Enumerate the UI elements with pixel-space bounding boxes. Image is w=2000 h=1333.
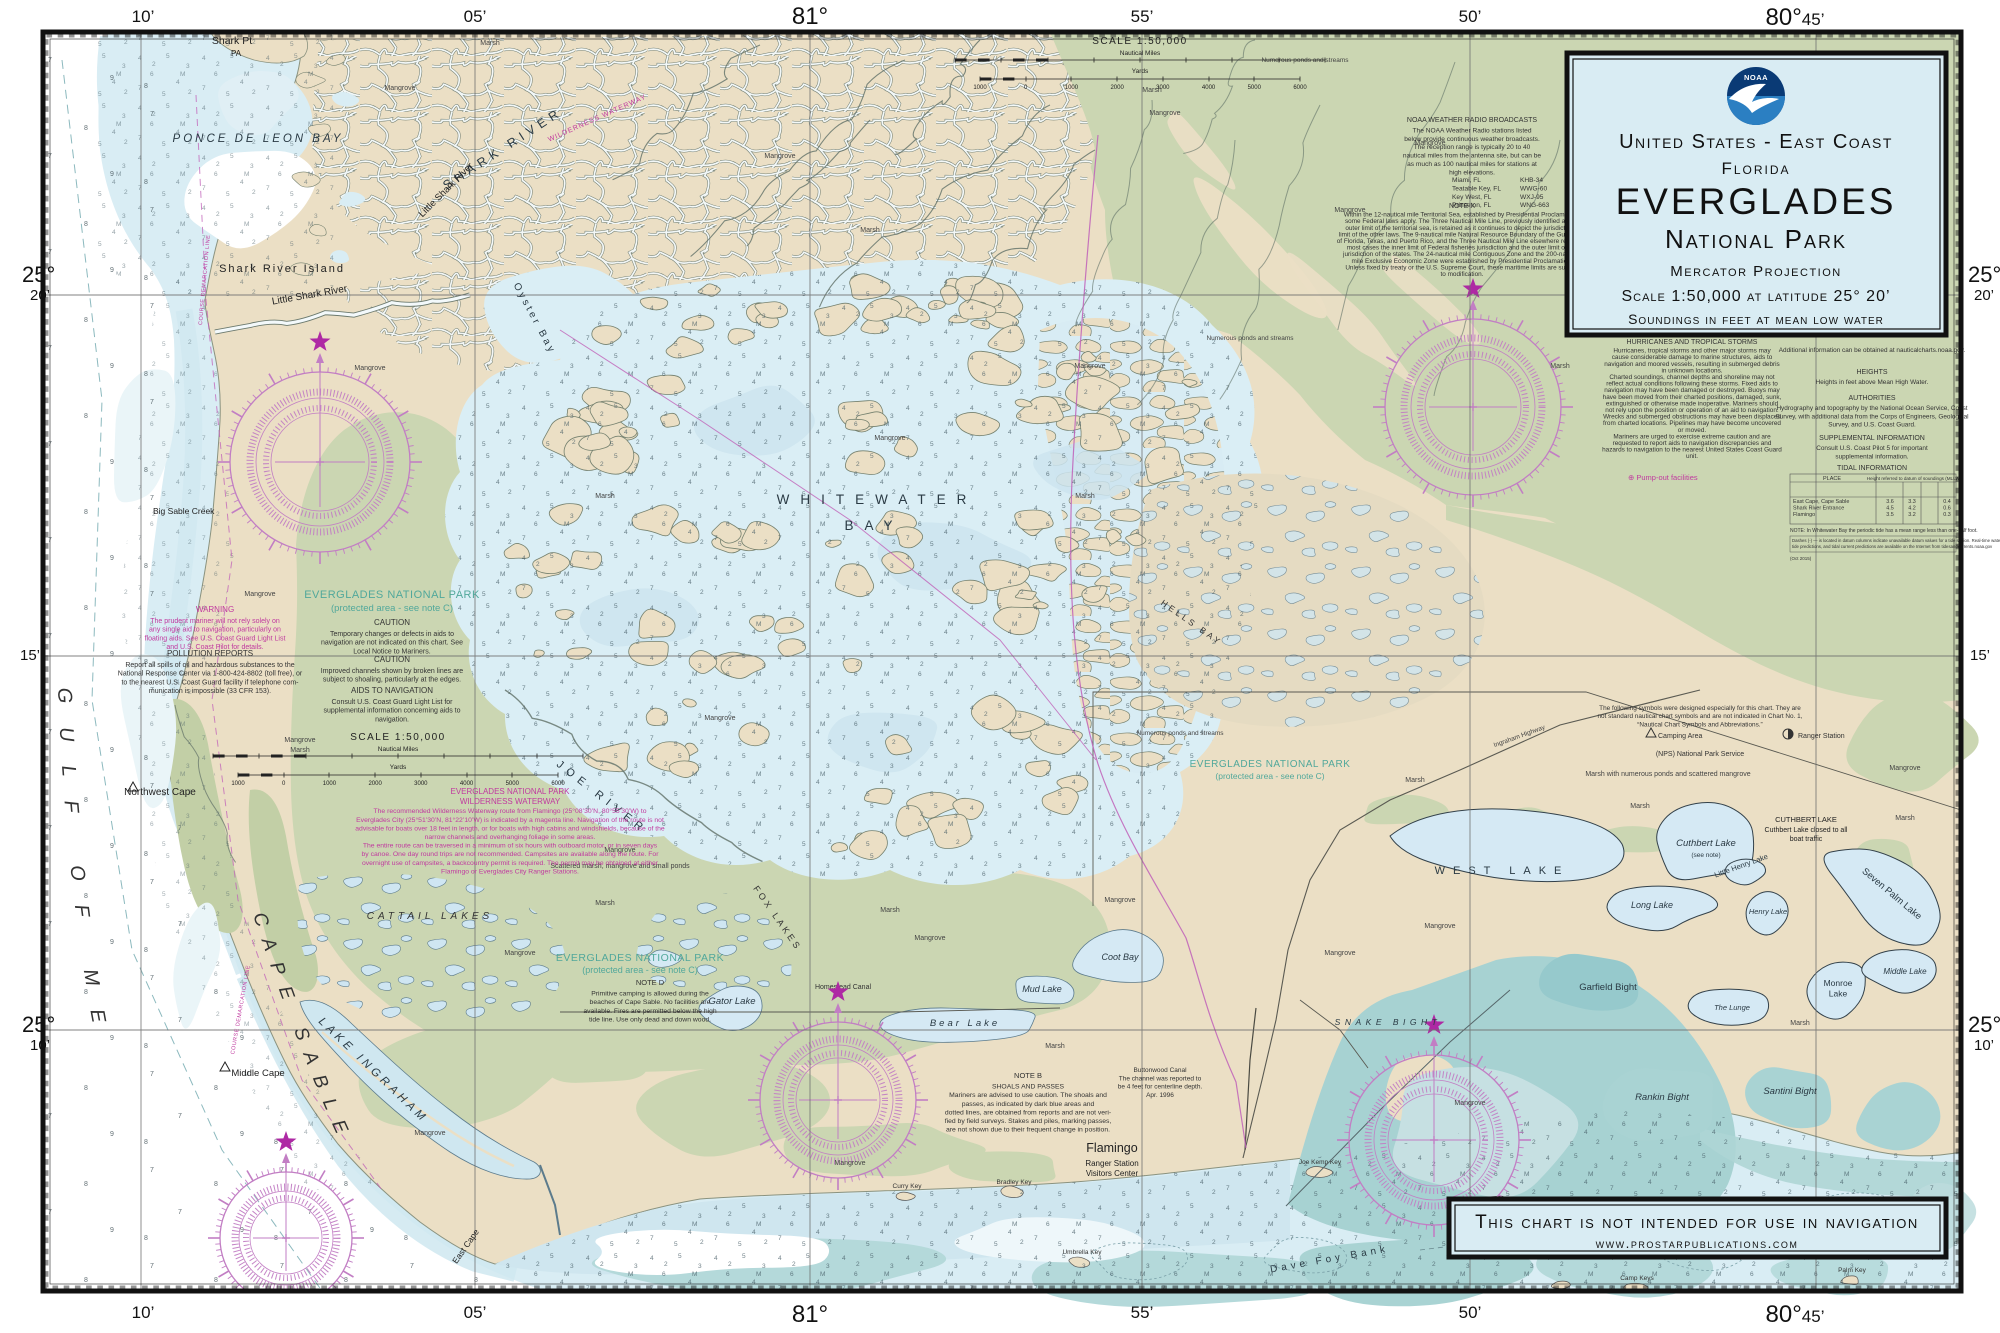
svg-text:Mariners are advised to use ca: Mariners are advised to use caution. The… xyxy=(949,1092,1107,1099)
svg-text:Teatable Key, FL: Teatable Key, FL xyxy=(1452,185,1501,192)
svg-text:Shark River Entrance: Shark River Entrance xyxy=(1793,506,1844,512)
svg-text:10’: 10’ xyxy=(1974,1037,1994,1054)
svg-text:WHITEWATER: WHITEWATER xyxy=(777,492,978,507)
svg-text:Mangrove: Mangrove xyxy=(914,935,945,942)
svg-text:“Nautical Chart Symbols and Ab: “Nautical Chart Symbols and Abbreviation… xyxy=(1637,721,1762,728)
svg-text:boat traffic: boat traffic xyxy=(1790,836,1823,843)
svg-text:Numerous ponds and streams: Numerous ponds and streams xyxy=(1136,730,1224,737)
svg-text:Middle Lake: Middle Lake xyxy=(1883,967,1927,976)
svg-text:The entire route can be traver: The entire route can be traversed in a m… xyxy=(363,843,658,850)
svg-text:NOTE B: NOTE B xyxy=(1014,1071,1042,1080)
svg-text:dotted lines, are obtained fro: dotted lines, are obtained from reports … xyxy=(945,1109,1111,1116)
svg-text:NOTE D: NOTE D xyxy=(636,978,665,987)
svg-text:United States - East Coast: United States - East Coast xyxy=(1619,131,1893,153)
svg-text:are not shown due to their fre: are not shown due to their frequent chan… xyxy=(946,1127,1110,1134)
svg-text:Flamingo: Flamingo xyxy=(1086,1141,1137,1155)
svg-text:Everglades City (25°51’30’N,: Everglades City (25°51’30’N, 81°22’10’W)… xyxy=(356,816,664,824)
svg-text:50’: 50’ xyxy=(1459,7,1482,26)
svg-text:East Cape, Cape Sable: East Cape, Cape Sable xyxy=(1793,499,1849,505)
svg-text:81°: 81° xyxy=(792,3,828,30)
svg-text:be 4 feet for centerline depth: be 4 feet for centerline depth. xyxy=(1118,1084,1203,1091)
svg-text:1000: 1000 xyxy=(1065,85,1079,91)
svg-text:(see note): (see note) xyxy=(1691,852,1720,859)
svg-text:Curry Key: Curry Key xyxy=(893,1183,923,1190)
svg-text:Garfield Bight: Garfield Bight xyxy=(1579,982,1637,993)
svg-text:navigation are not indicated: navigation are not indicated on this cha… xyxy=(321,640,463,647)
svg-text:not standard nautical chart: not standard nautical chart symbols and … xyxy=(1598,713,1803,720)
svg-text:The channel was reported to: The channel was reported to xyxy=(1119,1075,1202,1082)
svg-text:1000: 1000 xyxy=(323,781,337,787)
svg-text:Marsh with numerous ponds and: Marsh with numerous ponds and scattered … xyxy=(1585,771,1750,778)
svg-text:Mangrove: Mangrove xyxy=(704,715,735,722)
svg-text:passes, as indicated by d: passes, as indicated by dark blue areas … xyxy=(962,1101,1095,1108)
svg-text:4000: 4000 xyxy=(460,781,474,787)
svg-text:PONCE DE LEON BAY: PONCE DE LEON BAY xyxy=(173,133,344,145)
svg-text:Middle Cape: Middle Cape xyxy=(231,1068,284,1079)
svg-text:WARNING: WARNING xyxy=(196,605,234,614)
svg-text:(protected area - see note C): (protected area - see note C) xyxy=(1215,771,1324,781)
svg-text:PA: PA xyxy=(231,49,242,58)
svg-text:Coot Bay: Coot Bay xyxy=(1101,952,1139,962)
svg-text:Temporary changes or defects i: Temporary changes or defects in aids to xyxy=(330,631,454,638)
svg-text:Marsh: Marsh xyxy=(1790,1020,1810,1027)
svg-text:CUTHBERT LAKE: CUTHBERT LAKE xyxy=(1775,815,1837,824)
svg-text:any single aid to navigation,: any single aid to navigation, particular… xyxy=(149,627,281,634)
svg-text:floating aids. See U.S. Coast: floating aids. See U.S. Coast Guard Ligh… xyxy=(145,635,286,642)
svg-text:10’: 10’ xyxy=(132,1303,155,1322)
svg-text:Numerous ponds and streams: Numerous ponds and streams xyxy=(1261,57,1349,64)
svg-text:WWG-60: WWG-60 xyxy=(1520,185,1547,192)
svg-text:BAY: BAY xyxy=(844,518,903,533)
svg-text:nautical miles from the antenn: nautical miles from the antenna site, bu… xyxy=(1403,153,1542,160)
svg-text:KHB-34: KHB-34 xyxy=(1520,177,1543,184)
svg-text:Northwest Cape: Northwest Cape xyxy=(124,787,196,798)
svg-text:The recommended Wilderness: The recommended Wilderness Waterway rout… xyxy=(373,807,646,815)
svg-text:advisable for boats over 18 fe: advisable for boats over 18 feet in leng… xyxy=(355,825,665,832)
svg-text:Marsh: Marsh xyxy=(860,227,880,234)
svg-text:Additional information can be: Additional information can be obtained a… xyxy=(1779,347,1966,354)
svg-text:Heights in feet above Mean Hig: Heights in feet above Mean High Water. xyxy=(1816,379,1929,386)
svg-text:HURRICANES AND TROPICAL STORMS: HURRICANES AND TROPICAL STORMS xyxy=(1627,339,1758,346)
svg-text:Ranger Station: Ranger Station xyxy=(1798,733,1845,740)
svg-text:Gator Lake: Gator Lake xyxy=(709,996,756,1007)
svg-text:NOAA: NOAA xyxy=(1744,73,1768,82)
svg-text:WEST LAKE: WEST LAKE xyxy=(1435,865,1570,877)
svg-text:CATTAIL LAKES: CATTAIL LAKES xyxy=(367,911,493,922)
svg-text:Florida: Florida xyxy=(1721,159,1790,178)
svg-text:EVERGLADES NATIONAL PARK: EVERGLADES NATIONAL PARK xyxy=(556,952,724,964)
svg-text:as much as 100 nautical miles: as much as 100 nautical miles for statio… xyxy=(1407,161,1537,168)
svg-text:Mangrove: Mangrove xyxy=(1104,897,1135,904)
svg-text:fied by field surveys. Stakes: fied by field surveys. Stakes and piles,… xyxy=(945,1118,1112,1125)
svg-text:Yards: Yards xyxy=(390,764,407,771)
svg-text:subject to shoaling, particula: subject to shoaling, particularly at the… xyxy=(323,677,461,684)
svg-text:Cuthbert Lake closed to all: Cuthbert Lake closed to all xyxy=(1765,827,1848,834)
svg-text:25°: 25° xyxy=(22,1012,55,1037)
svg-text:Ranger Station: Ranger Station xyxy=(1085,1159,1138,1168)
svg-text:Mangrove: Mangrove xyxy=(1424,923,1455,930)
svg-text:Consult U.S. Coast Guard Light: Consult U.S. Coast Guard Light List for xyxy=(332,699,454,706)
svg-text:Survey, and U.S. Coast Guard.: Survey, and U.S. Coast Guard. xyxy=(1828,422,1916,429)
svg-text:Miami, FL: Miami, FL xyxy=(1452,177,1481,184)
svg-text:3000: 3000 xyxy=(1156,85,1170,91)
svg-text:25°: 25° xyxy=(1968,1012,2000,1037)
svg-text:Hydrography and topography by: Hydrography and topography by the Nation… xyxy=(1776,405,1967,412)
svg-text:supplemental information conce: supplemental information concerning aids… xyxy=(324,708,461,715)
svg-text:CAUTION: CAUTION xyxy=(374,618,410,627)
svg-text:SHOALS AND PASSES: SHOALS AND PASSES xyxy=(992,1084,1064,1091)
svg-text:3.3: 3.3 xyxy=(1908,499,1916,505)
svg-text:Mangrove: Mangrove xyxy=(1454,1100,1485,1107)
svg-text:Mangrove: Mangrove xyxy=(414,1130,445,1137)
svg-text:Marsh: Marsh xyxy=(595,493,615,500)
svg-text:1000: 1000 xyxy=(231,781,245,787)
svg-text:Visitors Center: Visitors Center xyxy=(1086,1169,1139,1178)
svg-text:Mangrove: Mangrove xyxy=(1074,363,1105,370)
svg-text:(NPS) National Park Service: (NPS) National Park Service xyxy=(1656,751,1744,758)
svg-text:Marsh: Marsh xyxy=(480,40,500,47)
svg-text:Soundings in feet at mean low: Soundings in feet at mean low water xyxy=(1628,311,1884,327)
svg-text:Flamingo or Everglades City Ra: Flamingo or Everglades City Ranger Stati… xyxy=(441,868,579,875)
svg-text:(protected area - see note C): (protected area - see note C) xyxy=(331,603,453,614)
svg-text:Consult U.S. Coast Pilot 5 for: Consult U.S. Coast Pilot 5 for important xyxy=(1816,445,1928,452)
svg-text:Apr. 1996: Apr. 1996 xyxy=(1146,1092,1174,1099)
svg-text:The NOAA Weather Radio sta: The NOAA Weather Radio stations listed xyxy=(1413,127,1532,134)
svg-text:to the nearest U.S. Coast Guar: to the nearest U.S. Coast Guard facility… xyxy=(121,679,299,686)
svg-text:SNAKE BIGHT: SNAKE BIGHT xyxy=(1335,1017,1442,1027)
svg-text:by canoe. One day round tr: by canoe. One day round trips are not re… xyxy=(362,851,660,858)
svg-text:The following symbols were: The following symbols were designed espe… xyxy=(1599,705,1801,712)
svg-text:Key West, FL: Key West, FL xyxy=(1452,194,1492,201)
svg-text:CAUTION: CAUTION xyxy=(374,655,410,664)
svg-text:25°: 25° xyxy=(1968,262,2000,287)
svg-text:narrow channels and overhangin: narrow channels and overhanging foliage … xyxy=(425,834,596,841)
svg-text:This chart is not intended for: This chart is not intended for use in na… xyxy=(1475,1212,1919,1233)
svg-text:tide line. Use only dead and d: tide line. Use only dead and down wood. xyxy=(589,1016,711,1023)
svg-text:Dashes (-) — is located in dat: Dashes (-) — is located in datum columns… xyxy=(1792,538,2000,543)
svg-text:Mangrove: Mangrove xyxy=(764,153,795,160)
svg-text:3.6: 3.6 xyxy=(1886,499,1894,505)
svg-text:The reception range is typ: The reception range is typically 20 to 4… xyxy=(1414,144,1531,151)
svg-text:Yards: Yards xyxy=(1132,68,1149,75)
svg-text:SCALE 1:50,000: SCALE 1:50,000 xyxy=(350,732,446,743)
svg-text:The Lunge: The Lunge xyxy=(1714,1003,1750,1012)
svg-text:Bradley Key: Bradley Key xyxy=(996,1179,1032,1186)
svg-text:Primitive camping is allowe: Primitive camping is allowed during the xyxy=(591,991,709,998)
svg-text:Mangrove: Mangrove xyxy=(244,591,275,598)
svg-text:Cuthbert Lake: Cuthbert Lake xyxy=(1676,838,1736,849)
svg-text:0.3: 0.3 xyxy=(1943,512,1951,518)
svg-text:Buttonwood Canal: Buttonwood Canal xyxy=(1133,1067,1187,1074)
svg-text:15’: 15’ xyxy=(1970,647,1990,664)
svg-text:navigation.: navigation. xyxy=(375,716,409,723)
svg-text:AUTHORITIES: AUTHORITIES xyxy=(1848,395,1895,402)
svg-text:55’: 55’ xyxy=(1131,1303,1154,1322)
svg-text:6000: 6000 xyxy=(1293,85,1307,91)
svg-text:Bear Lake: Bear Lake xyxy=(930,1018,1000,1029)
svg-text:WXJ-95: WXJ-95 xyxy=(1520,194,1544,201)
svg-text:Big Sable Creek: Big Sable Creek xyxy=(153,506,215,516)
svg-text:www.prostarpublications.com: www.prostarpublications.com xyxy=(1596,1236,1799,1251)
svg-text:Marsh: Marsh xyxy=(1405,777,1425,784)
svg-text:NOTE X: NOTE X xyxy=(1449,203,1475,210)
svg-text:4.5: 4.5 xyxy=(1886,506,1894,512)
svg-text:NOAA WEATHER RADIO BROADCASTS: NOAA WEATHER RADIO BROADCASTS xyxy=(1407,117,1537,124)
svg-text:NOTE: In Whitewater Bay the pe: NOTE: In Whitewater Bay the periodic tid… xyxy=(1790,528,1978,534)
svg-text:Lake: Lake xyxy=(1829,988,1848,998)
svg-text:PLACE: PLACE xyxy=(1823,476,1841,482)
svg-text:EVERGLADES NATIONAL PARK: EVERGLADES NATIONAL PARK xyxy=(304,589,480,601)
svg-text:Marsh: Marsh xyxy=(1630,803,1650,810)
svg-text:WILDERNESS WATERWAY: WILDERNESS WATERWAY xyxy=(460,797,561,806)
svg-text:05’: 05’ xyxy=(464,7,487,26)
svg-text:Mangrove: Mangrove xyxy=(1324,950,1355,957)
svg-text:Mangrove: Mangrove xyxy=(284,737,315,744)
svg-text:0.6: 0.6 xyxy=(1943,506,1951,512)
svg-text:Shark River Island: Shark River Island xyxy=(219,263,345,275)
svg-text:Marsh: Marsh xyxy=(290,747,310,754)
svg-text:15’: 15’ xyxy=(20,647,40,664)
svg-text:Nautical Miles: Nautical Miles xyxy=(378,746,419,753)
svg-text:TIDAL INFORMATION: TIDAL INFORMATION xyxy=(1837,465,1907,472)
svg-text:beaches of Cape Sable. No: beaches of Cape Sable. No facilities are xyxy=(590,999,711,1006)
svg-text:Mangrove: Mangrove xyxy=(1149,110,1180,117)
svg-text:available. Fires are permit: available. Fires are permitted below the… xyxy=(583,1008,717,1015)
svg-text:Santini Bight: Santini Bight xyxy=(1763,1086,1817,1097)
svg-text:81°: 81° xyxy=(792,1301,828,1328)
svg-text:munication is impossible (33 C: munication is impossible (33 CFR 153). xyxy=(149,688,271,695)
svg-text:10’: 10’ xyxy=(30,1037,50,1054)
svg-text:National Park: National Park xyxy=(1665,224,1847,254)
svg-text:National Response Center via 1: National Response Center via 1-800-424-8… xyxy=(118,671,303,678)
svg-text:Mangrove: Mangrove xyxy=(1889,765,1920,772)
svg-text:Scale 1:50,000 at latitude 25°: Scale 1:50,000 at latitude 25° 20’ xyxy=(1621,288,1890,305)
svg-text:0.4: 0.4 xyxy=(1943,499,1951,505)
svg-text:EVERGLADES: EVERGLADES xyxy=(1616,181,1897,222)
svg-text:Survey, with additional data f: Survey, with additional data from the Co… xyxy=(1775,413,1968,420)
svg-text:Mangrove: Mangrove xyxy=(354,365,385,372)
svg-text:⊕ Pump-out facilities: ⊕ Pump-out facilities xyxy=(1628,473,1698,482)
svg-text:high elevations.: high elevations. xyxy=(1449,169,1495,176)
svg-text:05’: 05’ xyxy=(464,1303,487,1322)
svg-text:Marsh: Marsh xyxy=(1895,815,1915,822)
svg-text:6000: 6000 xyxy=(551,781,565,787)
svg-text:AIDS TO NAVIGATION: AIDS TO NAVIGATION xyxy=(351,686,433,695)
svg-text:Long Lake: Long Lake xyxy=(1631,900,1673,910)
svg-text:5000: 5000 xyxy=(506,781,520,787)
svg-text:unit.: unit. xyxy=(1686,453,1698,460)
svg-text:3.2: 3.2 xyxy=(1908,512,1916,518)
svg-text:2000: 2000 xyxy=(1110,85,1124,91)
svg-text:Report all spills of oil and h: Report all spills of oil and hazardous s… xyxy=(125,662,294,669)
svg-text:50’: 50’ xyxy=(1459,1303,1482,1322)
svg-text:WNG-663: WNG-663 xyxy=(1520,202,1550,209)
svg-text:to modification.: to modification. xyxy=(1441,271,1484,278)
svg-text:20’: 20’ xyxy=(30,287,50,304)
svg-text:2000: 2000 xyxy=(368,781,382,787)
svg-text:Nautical Miles: Nautical Miles xyxy=(1120,50,1161,57)
svg-text:Mangrove: Mangrove xyxy=(834,1160,865,1167)
svg-text:The prudent mariner will not r: The prudent mariner will not rely solely… xyxy=(150,618,280,625)
svg-text:below provide continuous weath: below provide continuous weather broadca… xyxy=(1404,136,1540,143)
svg-text:Monroe: Monroe xyxy=(1824,978,1853,988)
svg-text:Mangrove: Mangrove xyxy=(384,85,415,92)
svg-text:5000: 5000 xyxy=(1248,85,1262,91)
svg-text:supplemental information.: supplemental information. xyxy=(1835,453,1908,460)
svg-text:Numerous ponds and streams: Numerous ponds and streams xyxy=(1206,335,1294,342)
svg-text:10’: 10’ xyxy=(132,7,155,26)
svg-text:(protected area - see note C): (protected area - see note C) xyxy=(582,965,698,975)
svg-text:EVERGLADES NATIONAL PARK: EVERGLADES NATIONAL PARK xyxy=(1190,759,1351,770)
svg-text:Mud Lake: Mud Lake xyxy=(1022,984,1062,994)
svg-text:Marsh: Marsh xyxy=(1075,493,1095,500)
svg-text:overnight use of campsites, a: overnight use of campsites, a backcountr… xyxy=(362,860,659,867)
svg-text:HEIGHTS: HEIGHTS xyxy=(1856,369,1887,376)
svg-text:55’: 55’ xyxy=(1131,7,1154,26)
svg-text:Marsh: Marsh xyxy=(1550,363,1570,370)
svg-text:Marsh: Marsh xyxy=(880,907,900,914)
svg-text:Mercator Projection: Mercator Projection xyxy=(1670,263,1842,280)
svg-text:Height referred to datum of so: Height referred to datum of soundings (M… xyxy=(1867,476,1962,481)
svg-text:POLLUTION REPORTS: POLLUTION REPORTS xyxy=(167,649,253,658)
svg-text:20’: 20’ xyxy=(1974,287,1994,304)
svg-text:4.2: 4.2 xyxy=(1908,506,1916,512)
svg-text:4000: 4000 xyxy=(1202,85,1216,91)
svg-text:Improved channels shown by bro: Improved channels shown by broken lines … xyxy=(321,668,464,675)
svg-text:Marsh: Marsh xyxy=(595,900,615,907)
svg-text:SCALE 1:50,000: SCALE 1:50,000 xyxy=(1092,36,1188,47)
svg-text:3.5: 3.5 xyxy=(1886,512,1894,518)
svg-text:Marsh: Marsh xyxy=(1045,1043,1065,1050)
svg-text:1000: 1000 xyxy=(973,85,987,91)
svg-text:3000: 3000 xyxy=(414,781,428,787)
svg-text:EVERGLADES NATIONAL PARK: EVERGLADES NATIONAL PARK xyxy=(451,787,571,796)
svg-text:Mangrove: Mangrove xyxy=(504,950,535,957)
svg-text:Mangrove: Mangrove xyxy=(874,435,905,442)
svg-text:(Oct 2015): (Oct 2015) xyxy=(1790,556,1812,561)
svg-text:Camping Area: Camping Area xyxy=(1658,733,1702,740)
svg-text:SUPPLEMENTAL INFORMATION: SUPPLEMENTAL INFORMATION xyxy=(1819,435,1925,442)
svg-text:25°: 25° xyxy=(22,262,55,287)
svg-text:Henry Lake: Henry Lake xyxy=(1749,907,1787,916)
svg-text:Flamingo: Flamingo xyxy=(1793,512,1815,518)
svg-text:Rankin Bight: Rankin Bight xyxy=(1635,1092,1689,1103)
